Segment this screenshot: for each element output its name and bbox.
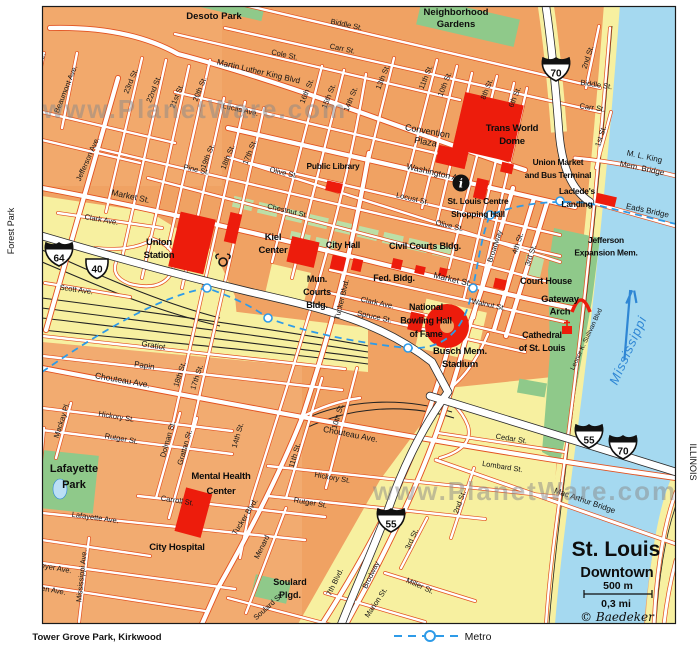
metro-legend-station <box>425 631 435 641</box>
landmark-label: Mun.CourtsBldg. <box>303 274 331 310</box>
landmark-label: City Hospital <box>149 542 204 553</box>
shield-number: 55 <box>385 520 397 531</box>
credit: © Baedeker <box>580 610 655 624</box>
margin-label-illinois: ILLINOIS <box>688 443 698 480</box>
map-title: St. Louis <box>572 538 661 561</box>
direction-label: Tower Grove Park, Kirkwood <box>32 632 161 643</box>
map-content: i Biddle St.Carr St.Cole St.Martin Luthe… <box>20 0 677 648</box>
park-label: Desoto Park <box>186 11 242 22</box>
watermark: www.PlanetWare.com <box>42 94 347 124</box>
margin-label-forest-park: Forest Park <box>6 207 16 254</box>
shield-number: 64 <box>53 254 65 265</box>
watermark: www.PlanetWare.com <box>372 476 677 506</box>
landmark-label: City Hall <box>326 240 360 250</box>
shield-number: 40 <box>91 265 103 276</box>
landmark-label: Civil Courts Bldg. <box>389 241 461 251</box>
metro-legend-label: Metro <box>465 631 492 643</box>
st-louis-downtown-map: i Biddle St.Carr St.Cole St.Martin Luthe… <box>0 0 700 648</box>
scale-metric: 500 m <box>603 580 633 592</box>
map-subtitle: Downtown <box>580 565 653 581</box>
metro-station <box>264 314 272 322</box>
landmark-label: Fed. Bldg. <box>373 273 415 283</box>
metro-station <box>203 284 211 292</box>
landmark-label: Court House <box>520 276 572 286</box>
shield-number: 70 <box>617 447 629 458</box>
shield-number: 70 <box>550 69 562 80</box>
scale-imperial: 0,3 mi <box>601 598 631 610</box>
shield-number: 55 <box>583 436 595 447</box>
map-canvas: i Biddle St.Carr St.Cole St.Martin Luthe… <box>0 0 700 648</box>
landmark-label: Public Library <box>306 161 360 171</box>
metro-station <box>404 344 412 352</box>
